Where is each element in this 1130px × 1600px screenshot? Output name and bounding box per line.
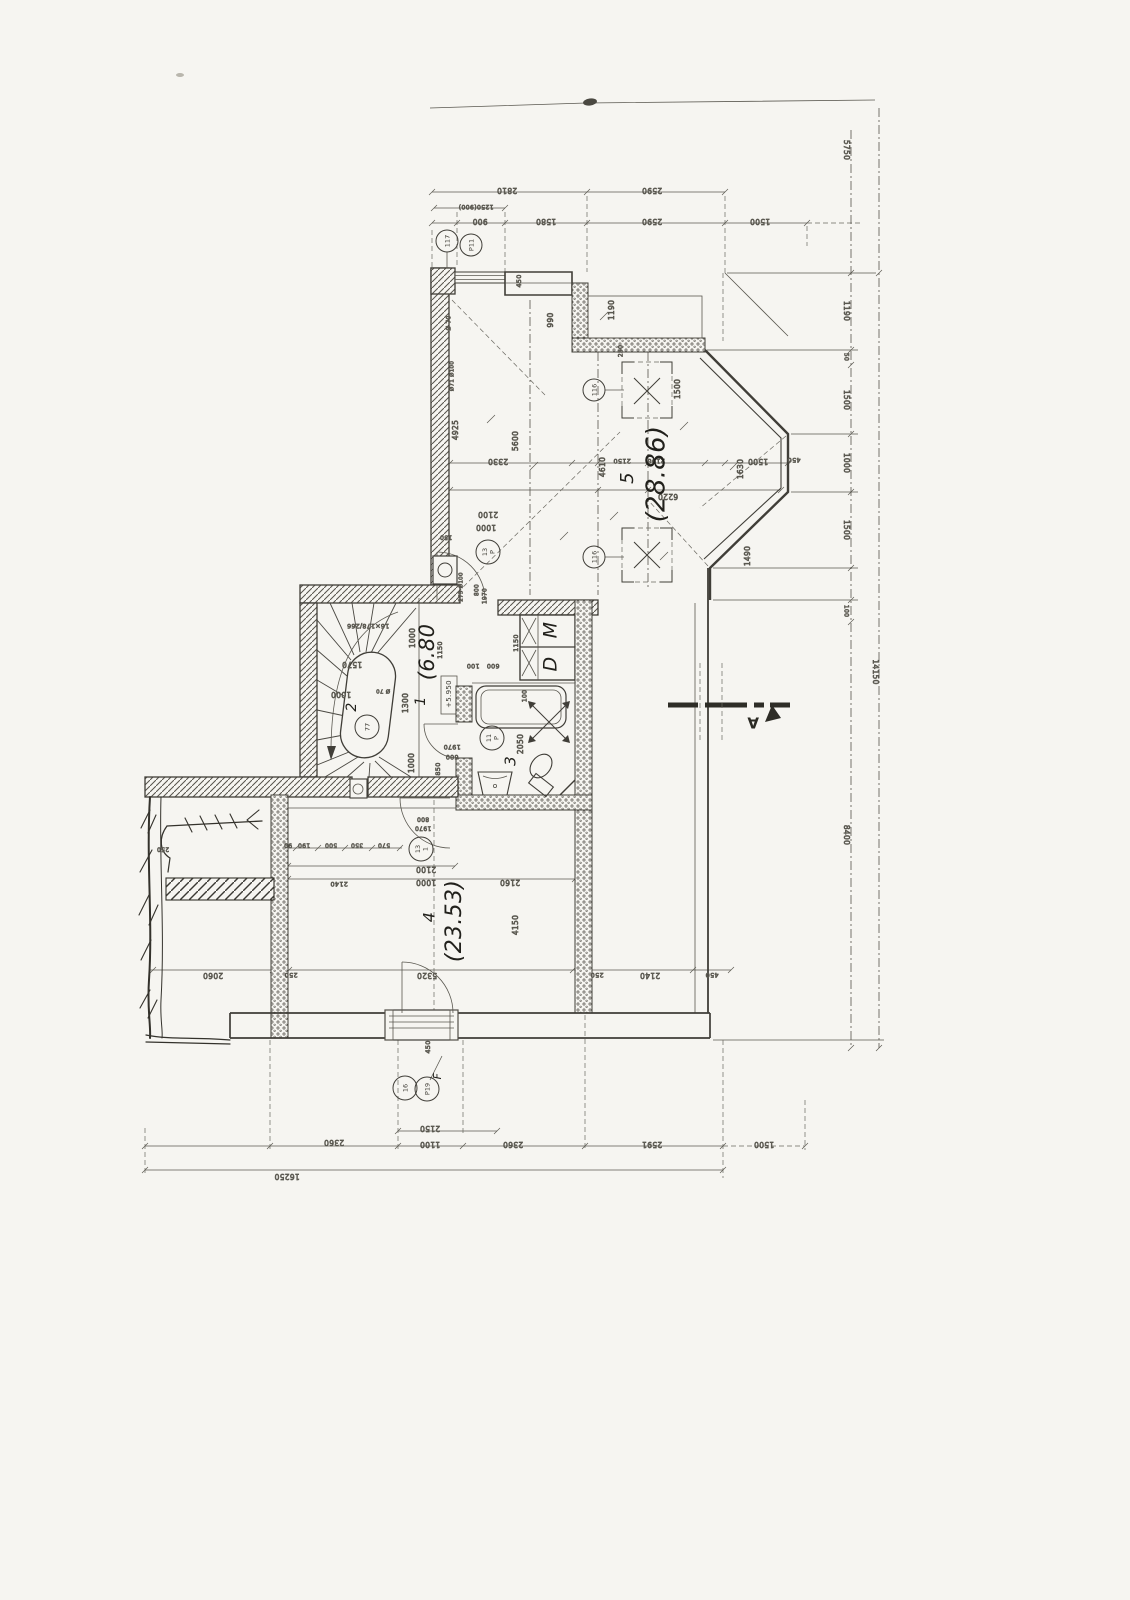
dimension-label: 250 (618, 345, 625, 357)
dimension-label: 1500 (842, 390, 851, 410)
handwritten-label: 1 (413, 696, 429, 705)
dimension-label: 5600 (511, 431, 520, 451)
position-marker-circle: 116 (583, 379, 605, 401)
dimension-label: 600 (446, 753, 459, 760)
dimension-label: 2330 (488, 457, 508, 466)
dimension-label: 800 (475, 584, 481, 596)
dimension-label: 2150 (420, 1124, 440, 1133)
handwritten-label: 5 (617, 472, 638, 484)
dimension-label: 600 (487, 662, 500, 669)
scan-artifacts (176, 73, 875, 108)
dimension-label: 2140 (640, 971, 660, 980)
handwritten-label: 3 (502, 756, 520, 766)
marker-id: P11 (468, 239, 476, 251)
marker-id: 77 (364, 723, 372, 731)
dimension-label: 8400 (842, 825, 851, 845)
dimension-label: 100 (843, 605, 850, 617)
dimension-label: 1570 (342, 660, 362, 669)
bathroom-door (424, 724, 458, 758)
dimension-label: 1000 (476, 523, 496, 532)
dimension-label: 90 (284, 842, 292, 849)
handwritten-label: 2 (344, 702, 360, 711)
floorplan-canvas: 281025901250(900)90015802590150057501190… (0, 0, 1130, 1600)
dimension-label: Ø71 Ø100 (449, 361, 456, 392)
dimension-label: 1150 (512, 634, 520, 652)
dimension-label: 2160 (500, 878, 520, 887)
marker-id: 116 (591, 384, 599, 396)
dimension-label: 1000 (407, 753, 416, 773)
dimension-label: 450 (424, 1040, 432, 1053)
window-top (455, 272, 505, 283)
position-marker-circle: 16 (393, 1076, 417, 1100)
dimension-label: 1580 (536, 217, 556, 226)
dimension-label: 450 (515, 274, 523, 287)
dimension-label: 275 Ø100 (458, 572, 465, 602)
column (350, 779, 367, 798)
position-marker-circle: 13P (476, 540, 500, 564)
section-arrow (765, 705, 781, 722)
dimension-label: 190 (298, 842, 310, 849)
marker-id: P (489, 550, 497, 554)
marker-id: 117 (444, 235, 452, 247)
dimension-label: 14150 (871, 659, 880, 684)
dimension-label: Ø 70 (446, 315, 453, 330)
handwritten-label: D (540, 657, 562, 672)
position-marker-circle: 131 (409, 837, 433, 861)
dimension-label: 850 (434, 762, 442, 775)
dimension-label: +5.950 (445, 680, 453, 708)
dimension-label: 5320 (417, 971, 437, 980)
dimension-label: 4925 (451, 420, 460, 440)
corridor-wall (695, 568, 708, 1013)
dimension-label: 570 (378, 842, 390, 849)
dimension-label: 1630 (736, 459, 745, 479)
marker-id: P19 (424, 1083, 432, 1095)
dimension-label: 1000 (416, 878, 436, 887)
dimension-label: 450 (705, 971, 718, 979)
handwritten-label: (28.86) (642, 426, 672, 523)
dimension-label: 16×178/266 (347, 622, 389, 629)
dimension-label: 1500 (673, 379, 682, 399)
dimension-label: 2590 (642, 217, 662, 226)
dimension-label: 2050 (516, 734, 525, 754)
entrance-door-frame (385, 1010, 458, 1040)
dimension-label: Ø 70 (376, 688, 390, 695)
dimension-label: 990 (546, 312, 555, 327)
dimension-label: 50 (843, 353, 850, 361)
annotation-labels: 281025901250(900)90015802590150057501190… (157, 140, 880, 1181)
handwritten-label: (6.80 (415, 624, 439, 680)
dimension-label: 1300 (401, 693, 410, 713)
dimension-label: 150 (440, 534, 452, 541)
scanned-floorplan-page: 281025901250(900)90015802590150057501190… (0, 0, 1130, 1600)
dimension-label: 1500 (842, 520, 851, 540)
handwritten-label: M (540, 622, 562, 639)
dimension-label: 250 (284, 971, 297, 979)
chimney (433, 556, 457, 584)
dimension-label: 1500 (754, 1140, 774, 1149)
dimension-label: 1500 (748, 457, 768, 466)
dimension-label: 16250 (274, 1172, 299, 1181)
dimension-label: 2100 (416, 865, 436, 874)
corner-cut (560, 780, 575, 795)
dimension-label: 500 (325, 842, 337, 849)
roof-window-arrows (528, 701, 570, 743)
marker-id: 116 (591, 551, 599, 563)
toilet (526, 750, 557, 797)
dimension-label: 1250(900) (458, 203, 493, 210)
dimension-label: 1100 (420, 1140, 440, 1149)
dimension-label: 4150 (511, 915, 520, 935)
skylight-lower (605, 528, 672, 582)
handwritten-label: 4 (420, 912, 439, 922)
dimension-label: 1490 (743, 546, 752, 566)
position-marker-circle: 116 (583, 546, 605, 568)
scan-speck (583, 98, 598, 107)
exterior-sketch (139, 797, 274, 1044)
dimension-label: 1970 (443, 743, 460, 750)
dimension-label: 1190 (842, 301, 851, 321)
tree-sketch (161, 810, 262, 872)
sink (478, 772, 512, 795)
dimension-label: 2591 (642, 1140, 662, 1149)
marker-id: 16 (402, 1084, 410, 1092)
dimension-label: 800 (417, 816, 429, 823)
dimension-label: 2150 (613, 457, 631, 465)
dimension-label: 450 (787, 456, 800, 464)
room4-bottom-wall (230, 1010, 710, 1040)
position-marker-circle: 117 (436, 230, 458, 252)
dimension-label: 250 (590, 971, 603, 979)
dimension-label: 2590 (642, 186, 662, 195)
dimension-label: 1190 (607, 300, 616, 320)
dimension-label: 1970 (483, 588, 489, 604)
dimension-label: 100 (467, 662, 480, 669)
sketched-hatch-band (166, 878, 274, 900)
marker-id: P (493, 736, 501, 740)
dimension-label: 2140 (330, 880, 348, 888)
dimension-label: 1970 (415, 825, 431, 832)
handwritten-label: (23.53) (442, 880, 467, 962)
dimension-label: 2360 (324, 1138, 344, 1147)
dimension-label: 2810 (497, 186, 517, 195)
dimension-label: 5750 (842, 140, 851, 160)
marker-id: 1 (422, 847, 430, 851)
dimension-label: 1500 (750, 217, 770, 226)
position-marker-circle: 11P (480, 726, 504, 750)
dimension-label: 2100 (478, 510, 498, 519)
dimension-label: 900 (472, 217, 487, 226)
section-label: A (747, 714, 759, 732)
dimension-label: 100 (522, 690, 529, 702)
dimension-label: 250 (157, 846, 169, 853)
scan-smudge (176, 73, 184, 77)
section-line-a (668, 663, 790, 740)
dimension-label: 1000 (331, 690, 351, 699)
position-marker-circle: P19 (415, 1077, 439, 1101)
dimension-label: 350 (351, 842, 363, 849)
dimension-label: 2060 (203, 971, 223, 980)
dimension-label: 4610 (598, 457, 607, 477)
room5-walls (431, 268, 723, 600)
position-marker-circle: P11 (460, 234, 482, 256)
dimension-label: 1000 (842, 453, 851, 473)
skylight-upper (605, 362, 672, 418)
dimension-label: 2360 (503, 1140, 523, 1149)
